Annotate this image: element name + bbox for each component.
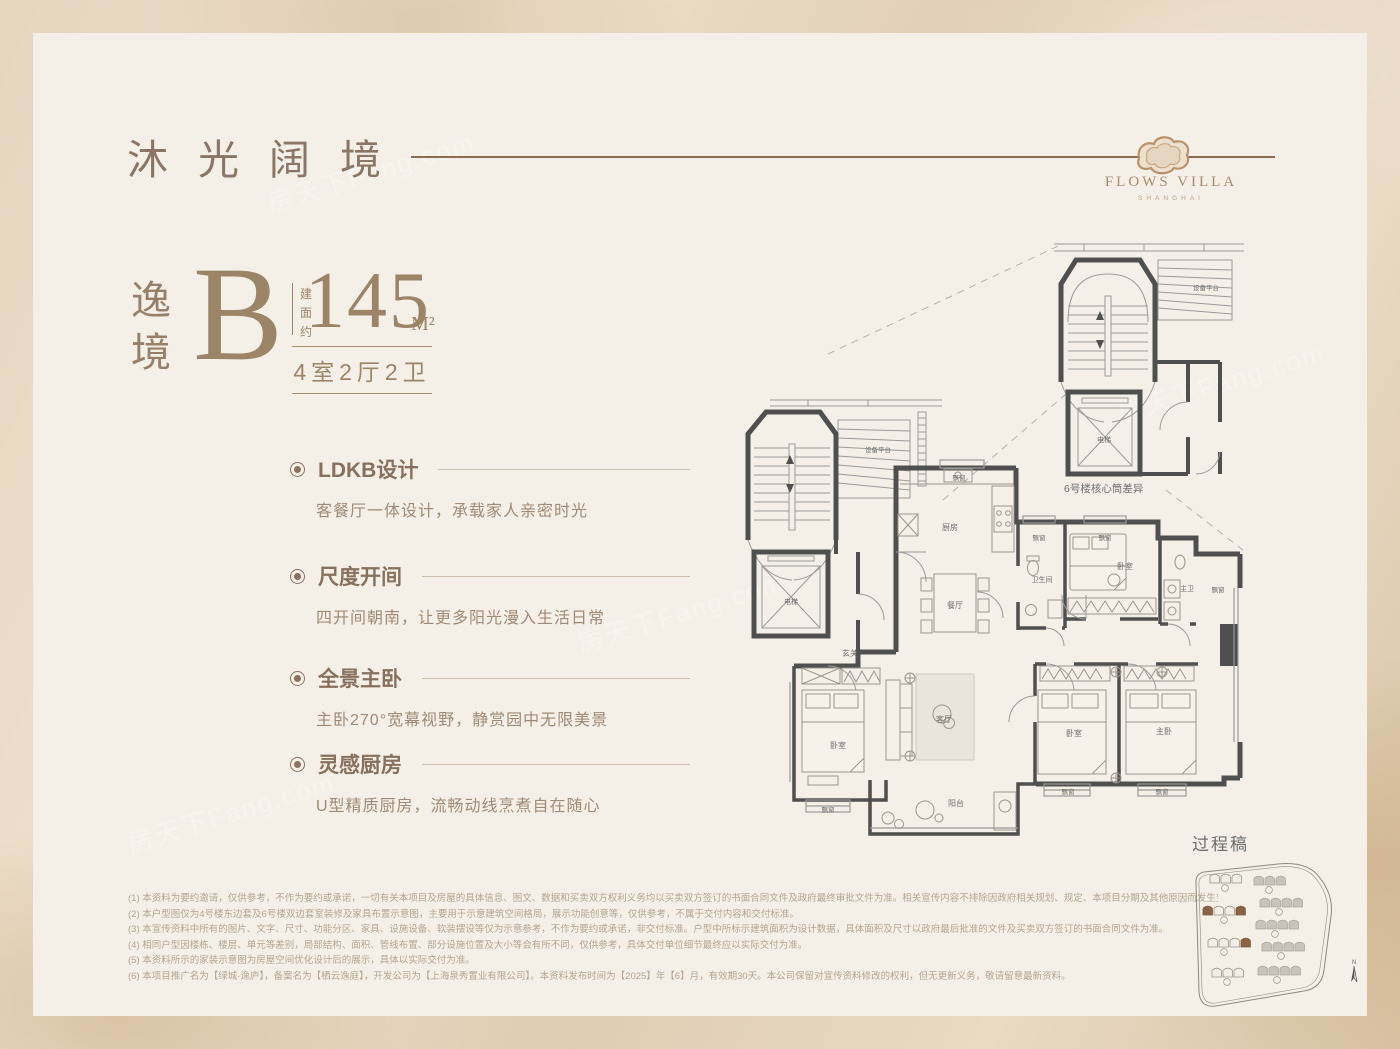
room-label-bedroom: 卧室 <box>1066 728 1082 738</box>
bullet-icon <box>290 462 305 477</box>
disclaimer-line: (1) 本资料为要约邀请，仅供参考，不作为要约或承诺，一切有关本项目及房屋的具体… <box>128 891 1218 907</box>
feature-kitchen: 灵感厨房 U型精质厨房，流畅动线烹煮自在随心 <box>290 749 690 816</box>
unit-name: 逸 境 <box>126 275 176 379</box>
page-title: 沐光阔境 <box>127 126 411 186</box>
feature-rule <box>422 576 690 577</box>
room-label-living: 客厅 <box>936 714 952 724</box>
room-label-master-bedroom: 主卧 <box>1156 726 1172 736</box>
wall-block <box>1220 624 1238 666</box>
draft-note: 过程稿 <box>1192 835 1249 854</box>
disclaimer: (1) 本资料为要约邀请，仅供参考，不作为要约或承诺，一切有关本项目及房屋的具体… <box>128 891 1218 985</box>
room-label-foyer: 玄关 <box>842 648 858 658</box>
feature-title: LDKB设计 <box>318 454 418 484</box>
bay-window-label: 飘窗 <box>1156 787 1169 796</box>
feature-title: 尺度开间 <box>318 561 402 591</box>
disclaimer-line: (4) 相同户型因楼栋、楼层、单元等差别，局部结构、面积、管线布置、部分设施位置… <box>128 938 1218 954</box>
disclaimer-line: (2) 本户型图仅为4号楼东边套及6号楼双边套室装修及家具布置示意图，主要用于示… <box>128 907 1218 923</box>
feature-master: 全景主卧 主卧270°宽幕视野，静赏园中无限美景 <box>290 663 690 730</box>
logo-subtext: SHANGHAI <box>1091 195 1251 202</box>
room-label-elevator: 电梯 <box>784 597 798 606</box>
room-label-equipment-platform: 设备平台 <box>1193 283 1219 292</box>
bay-window-label: 飘窗 <box>1062 787 1075 796</box>
disclaimer-line: (6) 本项目推广名为【绿城·逸庐】，备案名为【栖云逸庭】，开发公司为【上海泉秀… <box>128 969 1218 985</box>
logo-text: FLOWS VILLA <box>1091 174 1251 191</box>
rooms-summary: 4室2厅2卫 <box>292 346 432 394</box>
core-diff-note: 6号楼核心筒差异 <box>1064 482 1143 495</box>
room-label-equipment-platform: 设备平台 <box>865 445 891 454</box>
room-label-bedroom: 卧室 <box>830 740 846 750</box>
room-label-kitchen: 厨房 <box>942 522 958 532</box>
unit-divider <box>292 283 293 335</box>
room-label-balcony: 阳台 <box>948 798 964 808</box>
north-arrow-icon: N <box>1351 960 1357 982</box>
core-building6: 电梯 设备平台 <box>1054 244 1244 474</box>
feature-desc: 四开间朝南，让更多阳光漫入生活日常 <box>316 604 690 628</box>
bullet-icon <box>290 671 305 686</box>
core-building4: 电梯 设备平台 <box>748 400 942 664</box>
unit-name-char2: 境 <box>126 327 176 379</box>
bay-window-label: 飘窗 <box>1212 585 1225 594</box>
feature-desc: 主卧270°宽幕视野，静赏园中无限美景 <box>316 706 690 730</box>
feature-desc: 客餐厅一体设计，承载家人亲密时光 <box>316 497 690 521</box>
north-label: N <box>1352 960 1356 966</box>
area-unit: M² <box>411 313 435 336</box>
site-buildings-gray <box>1254 876 1304 975</box>
bay-window-label: 飘窗 <box>953 473 966 482</box>
feature-span: 尺度开间 四开间朝南，让更多阳光漫入生活日常 <box>290 561 690 628</box>
bay-window-label: 飘窗 <box>1033 533 1046 542</box>
feature-title: 全景主卧 <box>318 663 402 693</box>
bay-window-label: 飘窗 <box>822 805 835 814</box>
unit-type-letter: B <box>193 247 283 382</box>
feature-ldkb: LDKB设计 客餐厅一体设计，承载家人亲密时光 <box>290 454 690 521</box>
room-label-dining: 餐厅 <box>947 601 963 610</box>
feature-rule <box>438 469 690 470</box>
feature-desc: U型精质厨房，流畅动线烹煮自在随心 <box>316 792 690 816</box>
disclaimer-line: (3) 本宣传资料中所有的图片、文字、尺寸、功能分区、家具、设施设备、软装摆设等… <box>128 922 1218 938</box>
room-label-master-bath: 主卫 <box>1180 584 1194 593</box>
floorplan: 电梯 设备平台 6号楼核心筒差异 <box>728 222 1350 870</box>
room-label-bath: 卫生间 <box>1032 575 1053 584</box>
feature-rule <box>422 678 690 679</box>
poster-panel: 房天下Fang.com 房天下Fang.com 房天下Fang.com 房天下F… <box>33 33 1367 1016</box>
disclaimer-line: (5) 本资料所示的家装示意图为房屋空间优化设计后的展示，具体以实际交付为准。 <box>128 953 1218 969</box>
unit-name-char1: 逸 <box>126 275 176 327</box>
bullet-icon <box>290 757 305 772</box>
feature-rule <box>422 764 690 765</box>
room-label-elevator: 电梯 <box>1097 435 1111 444</box>
bay-window-label: 飘窗 <box>1099 533 1112 542</box>
feature-title: 灵感厨房 <box>318 749 402 779</box>
room-label-bedroom: 卧室 <box>1117 561 1133 571</box>
bullet-icon <box>290 569 305 584</box>
